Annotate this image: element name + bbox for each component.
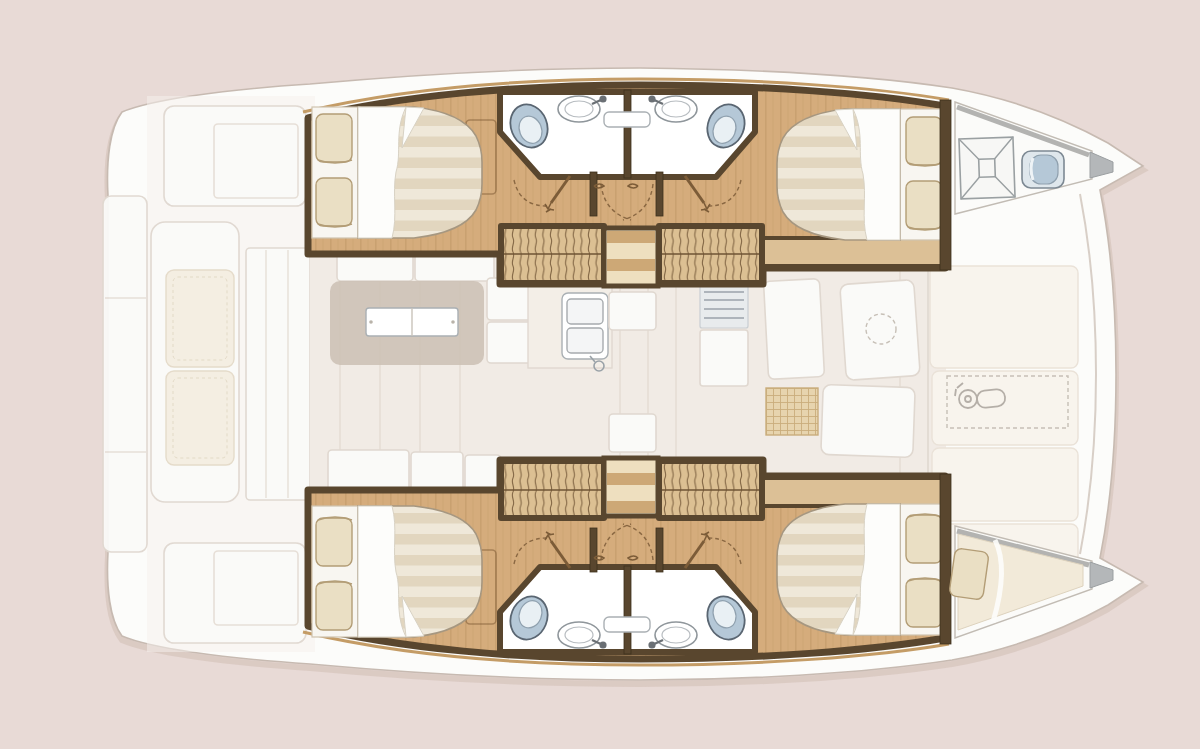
companionway-steps — [604, 228, 658, 286]
aft-deck-box-top — [164, 106, 306, 206]
galley-sink-basin-1 — [567, 299, 603, 324]
pillow-2 — [906, 181, 942, 229]
companionway-landing-top — [609, 292, 656, 330]
hull-top — [303, 79, 951, 286]
companionway-landing-bottom — [609, 414, 656, 452]
aft-deck-box-bottom — [164, 543, 306, 643]
forward-lounge-panel-3 — [821, 384, 915, 457]
pillow-1 — [316, 114, 352, 162]
transom-platform — [103, 196, 147, 552]
bathroom-divider-wall — [624, 90, 631, 178]
shared-counter — [604, 112, 650, 127]
side-shelf — [763, 238, 943, 266]
aft-cabin — [312, 107, 496, 238]
galley-sink-basin-2 — [567, 328, 603, 353]
forward-lounge-panel-2 — [840, 280, 921, 381]
pillow-1 — [906, 117, 942, 165]
wardrobes-and-steps — [501, 226, 762, 286]
cockpit-cushion-2 — [166, 371, 234, 465]
table-hinge-2 — [451, 320, 455, 324]
cockpit-cushion-1 — [166, 270, 234, 367]
forepeak-washbasin — [1022, 151, 1064, 188]
pillow-2 — [316, 178, 352, 226]
passage-wall-right — [656, 172, 663, 216]
forward-bulkhead — [940, 100, 951, 270]
woven-mat — [766, 388, 818, 435]
catamaran-floorplan — [0, 0, 1200, 749]
appliance-cabinet — [700, 330, 748, 386]
saloon-aft-sliding-door — [246, 248, 310, 500]
sunpad-panel-2 — [932, 371, 1078, 445]
hull-bottom — [303, 458, 951, 665]
passage-wall-left — [590, 172, 597, 216]
forward-lounge-panel-1 — [763, 279, 824, 380]
deck-hatch — [959, 137, 1015, 199]
berth-pillow — [949, 548, 989, 600]
sunpad-panel-3 — [932, 448, 1078, 521]
floorplan-canvas — [0, 0, 1200, 749]
sunpad-panel-1 — [930, 266, 1078, 368]
table-hinge-1 — [369, 320, 373, 324]
forward-cabin — [763, 109, 946, 266]
